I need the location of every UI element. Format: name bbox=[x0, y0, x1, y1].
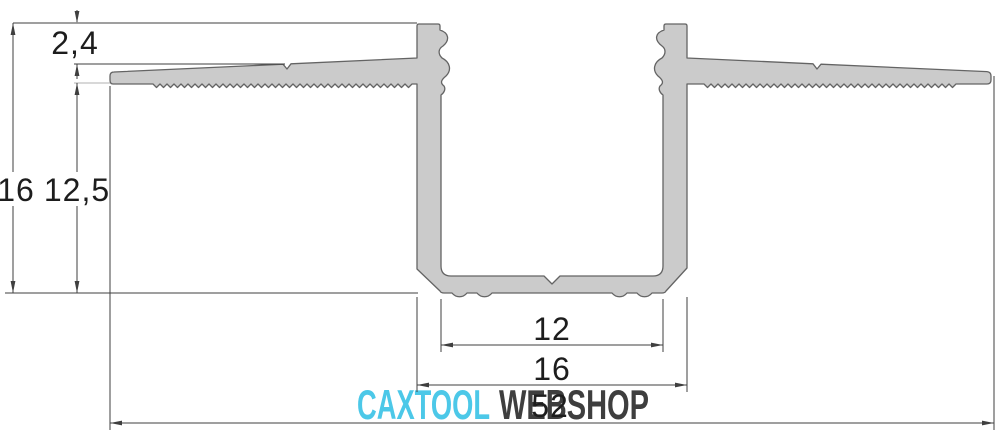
dim-label-base-width: 16 bbox=[533, 351, 571, 387]
watermark-brand: CAXTOOL bbox=[357, 381, 490, 428]
technical-drawing-canvas: CAXTOOL WEBSHOP bbox=[0, 0, 1000, 433]
watermark: CAXTOOL WEBSHOP bbox=[357, 381, 649, 428]
watermark-suffix: WEBSHOP bbox=[499, 381, 649, 428]
dim-label-flange-step: 2,4 bbox=[51, 25, 98, 61]
dim-label-overall-width: 52 bbox=[531, 388, 569, 424]
profile-drawing-svg: CAXTOOL WEBSHOP bbox=[0, 0, 1000, 433]
dim-label-total-height: 16 bbox=[0, 172, 35, 208]
profile-cross-section bbox=[110, 24, 991, 297]
dim-label-recess-depth: 12,5 bbox=[44, 172, 110, 208]
dim-label-inner-width: 12 bbox=[533, 311, 571, 347]
